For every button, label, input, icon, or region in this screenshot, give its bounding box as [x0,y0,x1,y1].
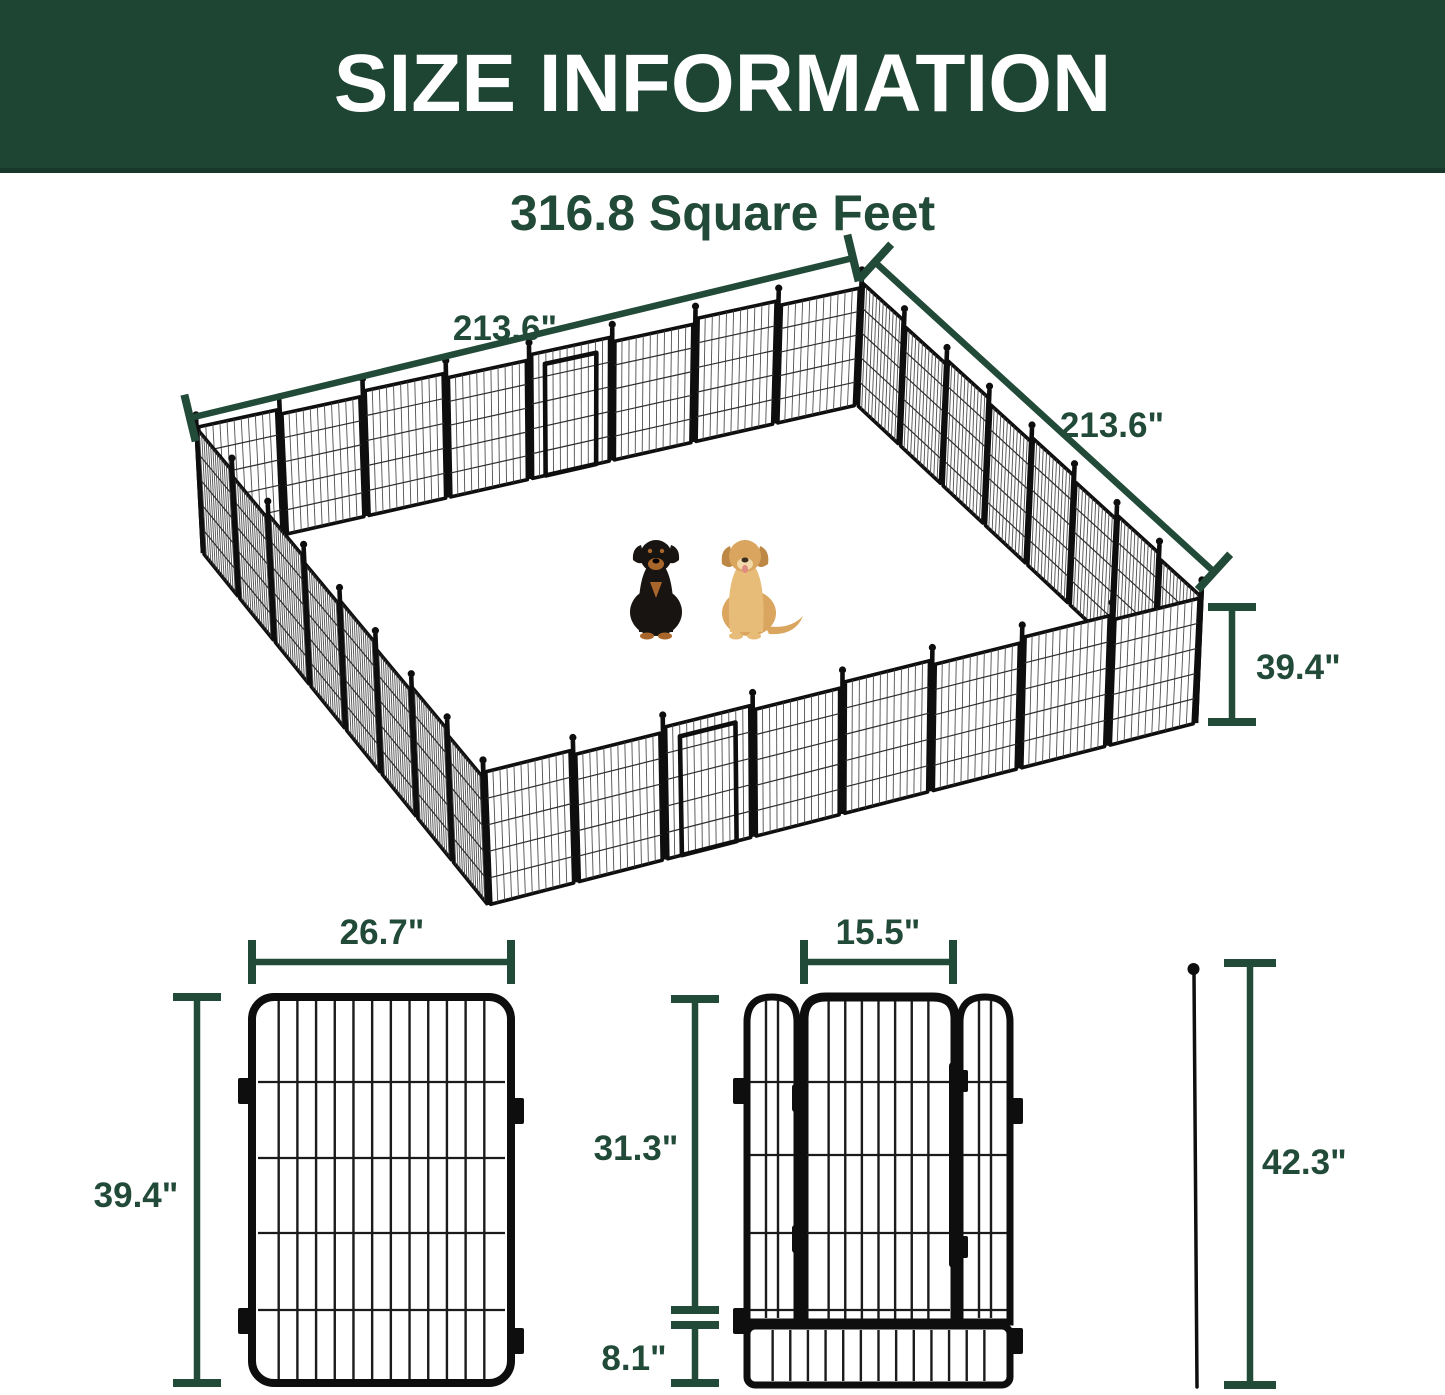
rottweiler-dog [630,540,682,640]
dim-label-left-side: 213.6" [453,309,557,348]
gate-right-strip [960,997,1010,1322]
gate-door-width-label: 15.5" [836,913,921,952]
gate-left-strip [747,997,797,1322]
playpen-isometric-view [192,266,1205,905]
panel-width-label: 26.7" [340,913,425,952]
gate-latch-rod [949,1062,958,1268]
dim-label-right-side: 213.6" [1060,406,1164,445]
dogs-illustration [630,540,803,640]
panel-frame [252,997,511,1383]
gate-front-view: 15.5" 31.3" 8.1" [594,913,1023,1385]
size-diagram: 213.6" 213.6" 39.4" 26.7" 39.4" 15.5" [0,0,1445,1395]
panel-front-view: 26.7" 39.4" [94,913,524,1383]
gate-hinge [792,1084,807,1112]
gate-door-height-label: 31.3" [594,1129,679,1168]
stake-rod [1194,974,1197,1387]
dim-label-height: 39.4" [1256,648,1341,687]
stake-height-label: 42.3" [1262,1143,1347,1182]
panel-height-label: 39.4" [94,1176,179,1215]
gate-bottom-height-label: 8.1" [601,1339,666,1378]
ground-stake-view: 42.3" [1188,963,1347,1387]
gate-hinge [792,1225,807,1253]
golden-retriever-dog [722,540,803,640]
